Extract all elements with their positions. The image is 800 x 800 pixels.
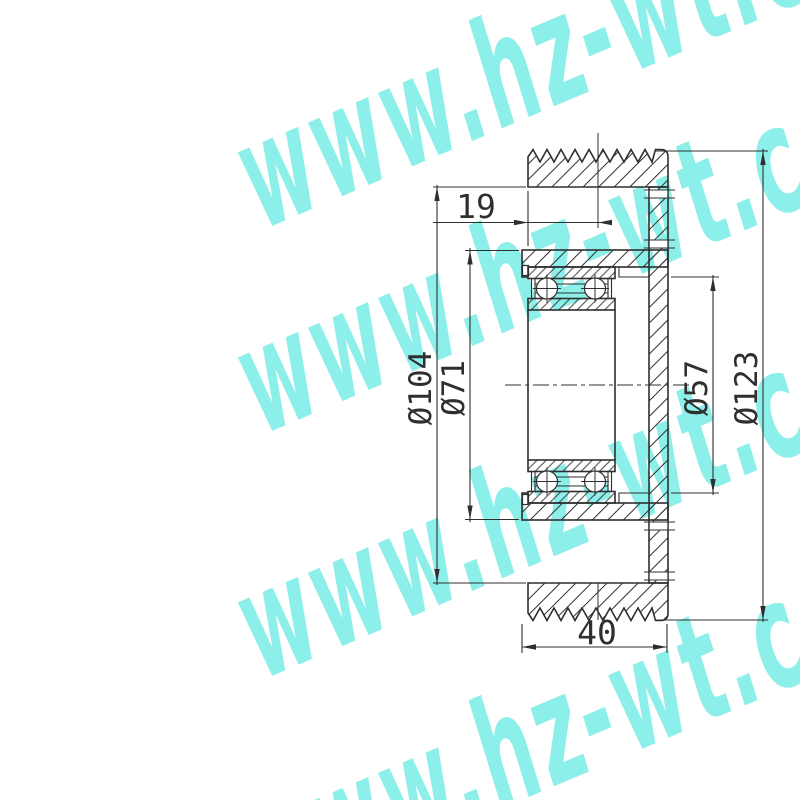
dim-label-40: 40 — [577, 613, 617, 652]
top-bore-step — [619, 267, 649, 277]
drawing-canvas: www.hz-wt.co www.hz-wt.co www.hz-wt.co w… — [0, 0, 800, 800]
dim-label-19: 19 — [456, 187, 496, 226]
dim-label-dia71: Ø71 — [436, 360, 472, 416]
pulley-cross-section-drawing: 19 40 Ø104 Ø71 — [0, 0, 800, 800]
bottom-bearing — [528, 460, 615, 503]
dimension-dia57: Ø57 — [671, 275, 719, 495]
centerlines — [505, 133, 702, 620]
dim-label-dia104: Ø104 — [403, 351, 439, 426]
bottom-web — [522, 503, 668, 520]
dim-label-dia57: Ø57 — [679, 360, 715, 416]
bottom-bore-step — [619, 493, 649, 503]
outer-race — [528, 267, 615, 279]
top-web — [522, 250, 668, 267]
inner-race — [528, 460, 615, 472]
dim-label-dia123: Ø123 — [729, 351, 765, 426]
top-bearing — [528, 267, 615, 310]
outer-race — [528, 492, 615, 504]
dimension-19: 19 — [433, 187, 612, 246]
inner-race — [528, 299, 615, 311]
